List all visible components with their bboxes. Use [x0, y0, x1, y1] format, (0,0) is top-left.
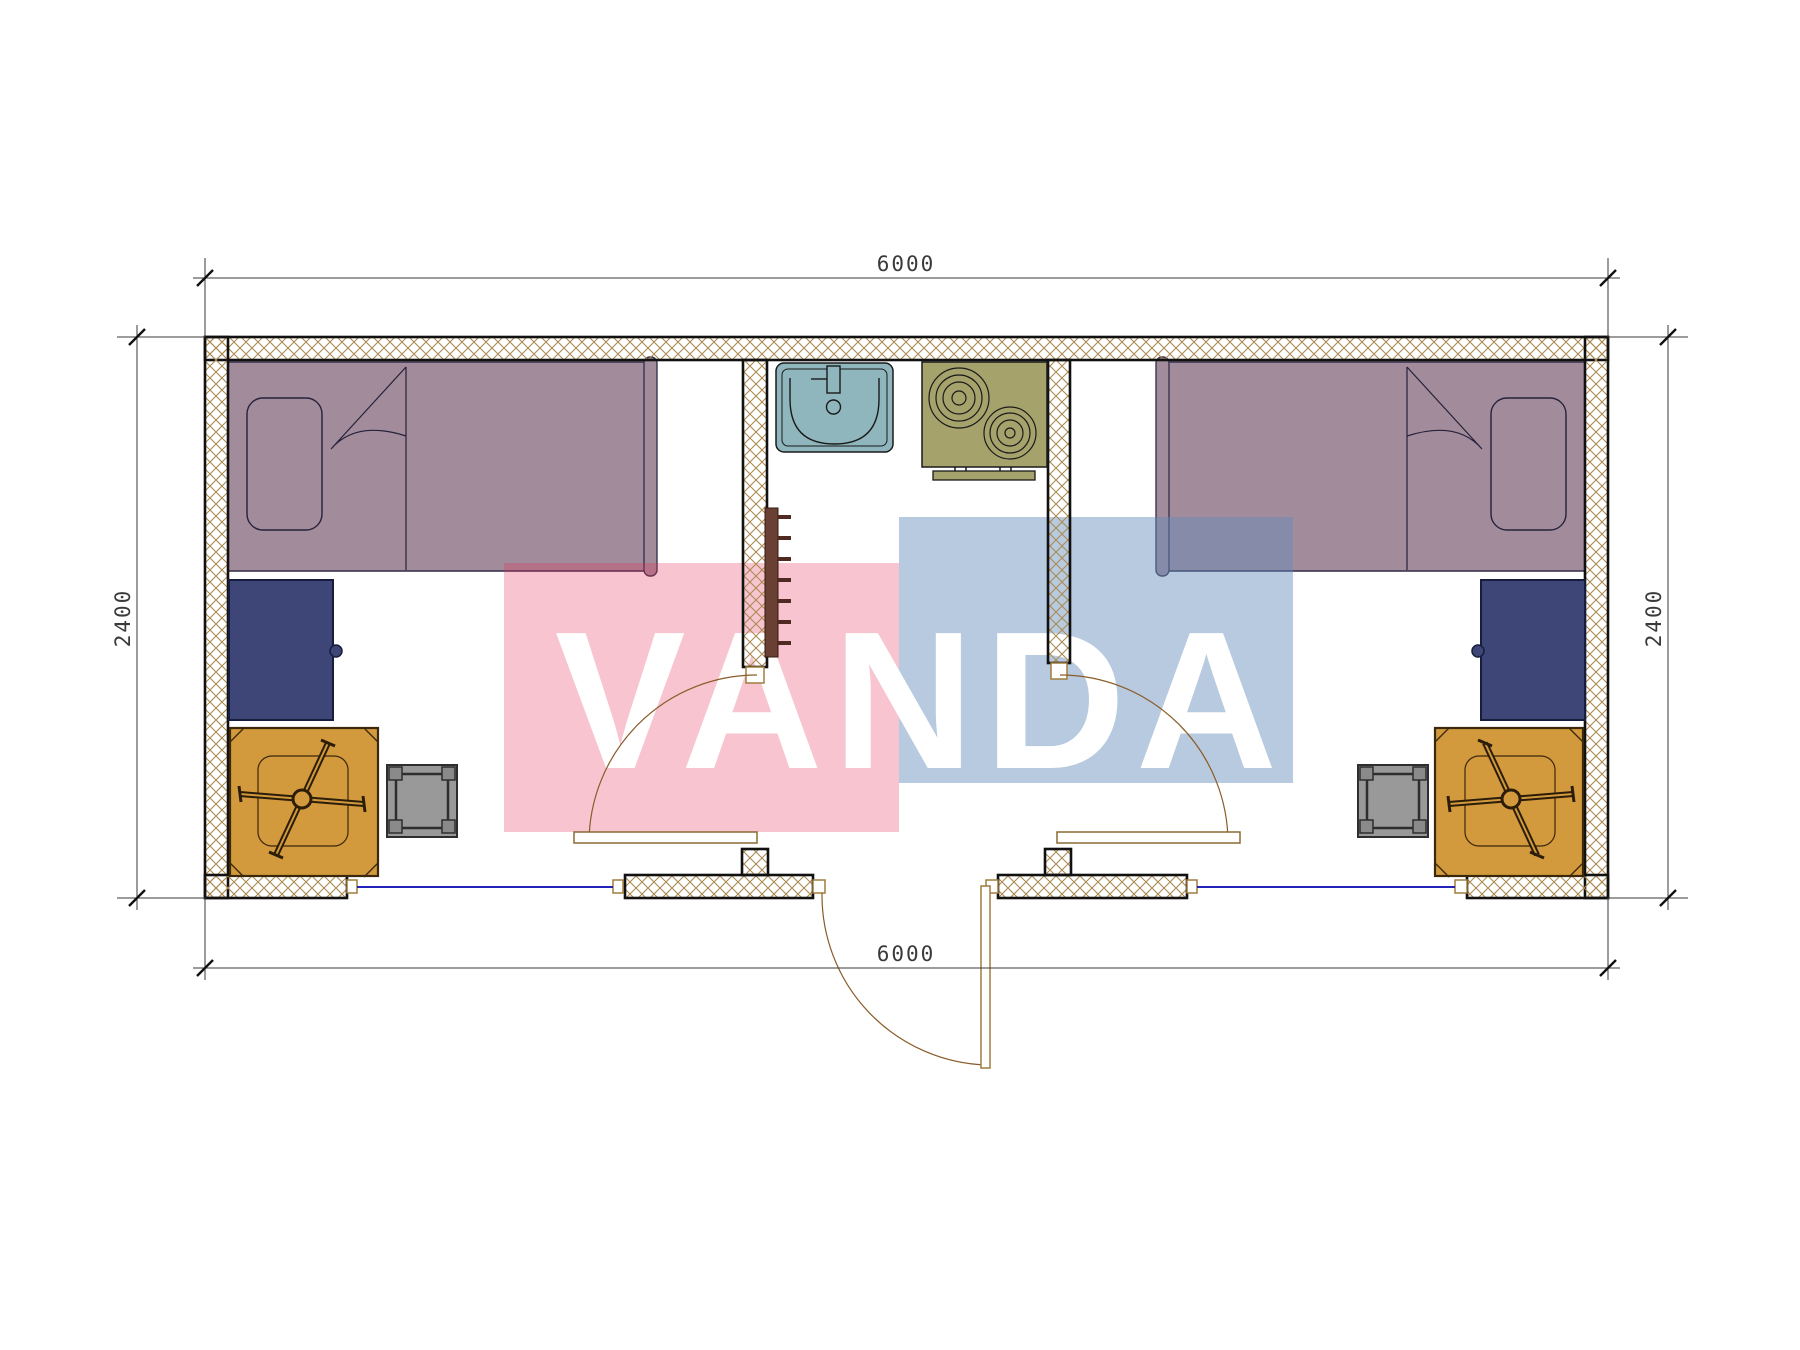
wall-bottom-mid-right — [998, 875, 1187, 898]
dim-label-right: 2400 — [1642, 589, 1666, 648]
partition-left — [743, 360, 767, 667]
window-left-frame-b — [613, 880, 623, 893]
right-desk — [1435, 728, 1583, 877]
dim-label-top: 6000 — [877, 252, 936, 276]
radiator-rungs — [778, 517, 791, 643]
entry-door-leaf — [981, 886, 990, 1068]
left-stool — [387, 765, 457, 837]
stove — [922, 362, 1047, 480]
right-stool — [1358, 765, 1428, 837]
left-room-door-arc — [589, 675, 757, 843]
wall-stub-right — [1045, 849, 1071, 875]
wall-bottom-mid-left — [625, 875, 813, 898]
dim-label-bottom: 6000 — [877, 942, 936, 966]
left-cabinet — [229, 580, 342, 720]
left-cabinet-knob — [330, 645, 342, 657]
wall-bottom-far-right — [1467, 875, 1608, 898]
doors — [574, 675, 1240, 1068]
wall-bottom-far-left — [205, 875, 347, 898]
right-cabinet-body — [1481, 580, 1585, 720]
left-desk — [230, 728, 378, 877]
sink-faucet — [827, 366, 840, 393]
right-room-door-arc — [1060, 675, 1228, 843]
sink — [776, 363, 893, 452]
left-cabinet-body — [229, 580, 333, 720]
partition-right — [1048, 360, 1070, 663]
right-chair-hub — [1502, 790, 1520, 808]
wall-stub-left — [742, 849, 768, 875]
dim-label-left: 2400 — [111, 589, 135, 648]
window-right-frame-b — [1455, 880, 1467, 893]
right-room-door-leaf — [1057, 832, 1240, 843]
wall-left — [205, 337, 228, 898]
entry-door-arc — [822, 893, 986, 1065]
window-left-frame-a — [347, 880, 357, 893]
frames — [347, 663, 1467, 893]
right-cabinet — [1472, 580, 1585, 720]
wall-right — [1585, 337, 1608, 898]
plan-layer: 6000 6000 2400 2400 — [0, 0, 1800, 1350]
radiator-bar — [765, 508, 778, 657]
left-chair-hub — [293, 790, 311, 808]
wall-top — [205, 337, 1608, 360]
left-room-door-leaf — [574, 832, 757, 843]
stove-base-plate — [933, 471, 1035, 480]
right-cabinet-knob — [1472, 645, 1484, 657]
entry-door-frame-a — [813, 880, 825, 893]
floor-plan: VANDA — [0, 0, 1800, 1350]
window-right-frame-a — [1187, 880, 1197, 893]
partition-right-door-frame — [1051, 663, 1067, 679]
radiator — [765, 508, 791, 657]
